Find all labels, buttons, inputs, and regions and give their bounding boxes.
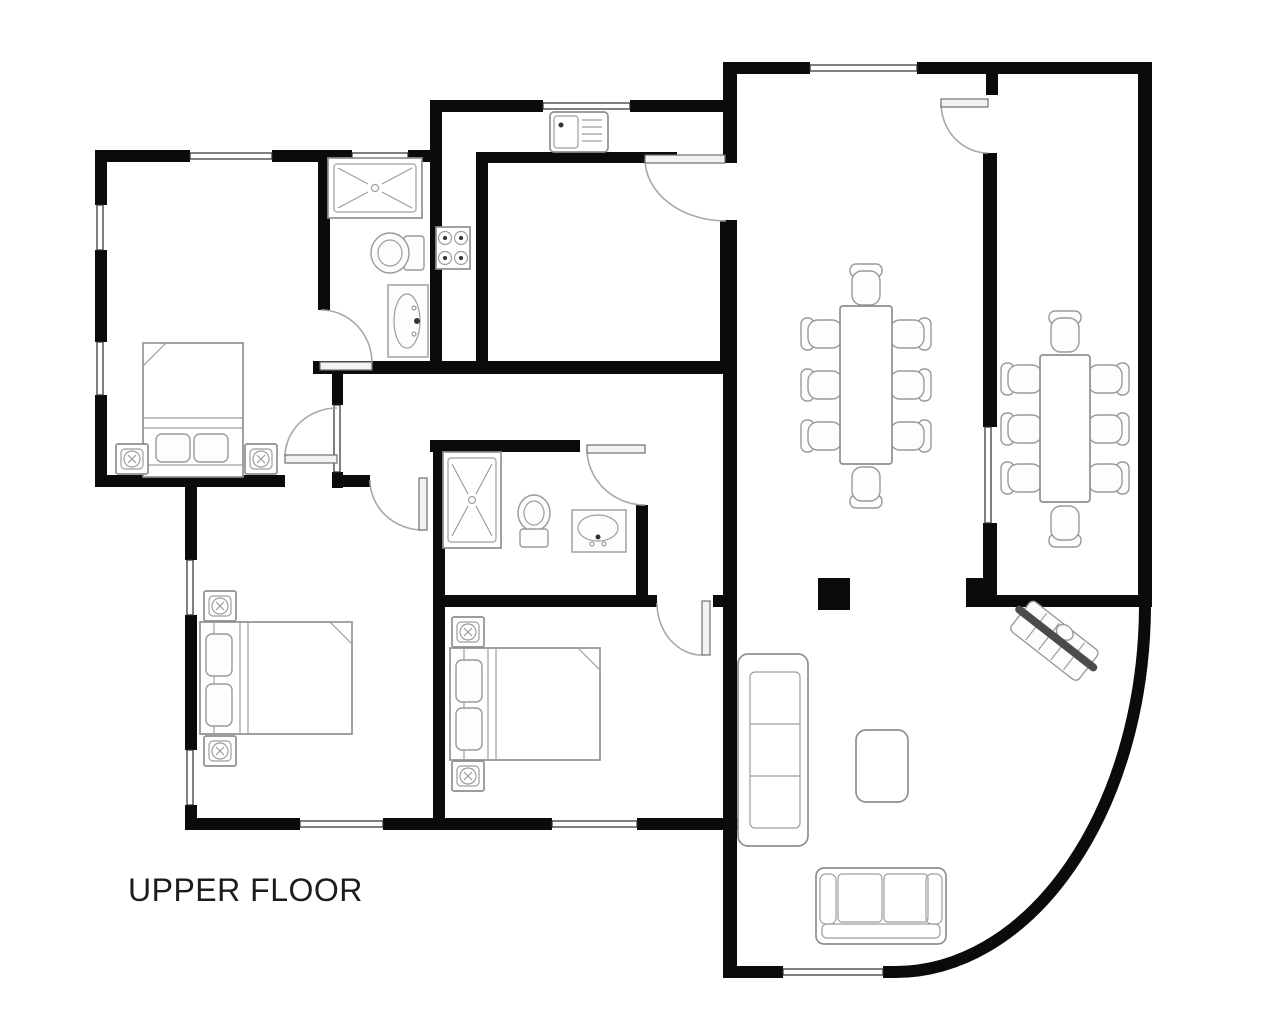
sofa-horizontal-icon: [816, 868, 946, 944]
shower-tray-icon: [328, 158, 422, 218]
floor-plan-drawing: [0, 0, 1280, 1024]
sofa-vertical-icon: [738, 654, 808, 846]
double-bed-icon: [450, 648, 600, 760]
pillow-icon: [456, 708, 482, 750]
staircase-icon: [1002, 594, 1106, 688]
washbasin-icon: [388, 285, 428, 357]
pillow-icon: [156, 434, 190, 462]
shower-tray-icon: [443, 452, 501, 548]
floor-label: UPPER FLOOR: [128, 872, 363, 909]
floor-plan-canvas: UPPER FLOOR: [0, 0, 1280, 1024]
table-icon: [1040, 355, 1090, 502]
column-icon: [818, 578, 850, 610]
table-icon: [840, 306, 892, 464]
table-with-chairs: [801, 264, 931, 508]
washbasin-icon: [572, 510, 626, 552]
toilet-icon: [518, 495, 550, 547]
table-with-chairs: [1001, 311, 1129, 547]
pillow-icon: [456, 660, 482, 702]
kitchen-sink-icon: [550, 112, 608, 152]
pillow-icon: [206, 684, 232, 726]
pillow-icon: [194, 434, 228, 462]
stove-icon: [436, 227, 470, 269]
pillow-icon: [206, 634, 232, 676]
coffee-table-icon: [856, 730, 908, 802]
double-bed-icon: [200, 622, 352, 734]
double-bed-icon: [143, 343, 243, 477]
toilet-icon: [371, 233, 424, 273]
